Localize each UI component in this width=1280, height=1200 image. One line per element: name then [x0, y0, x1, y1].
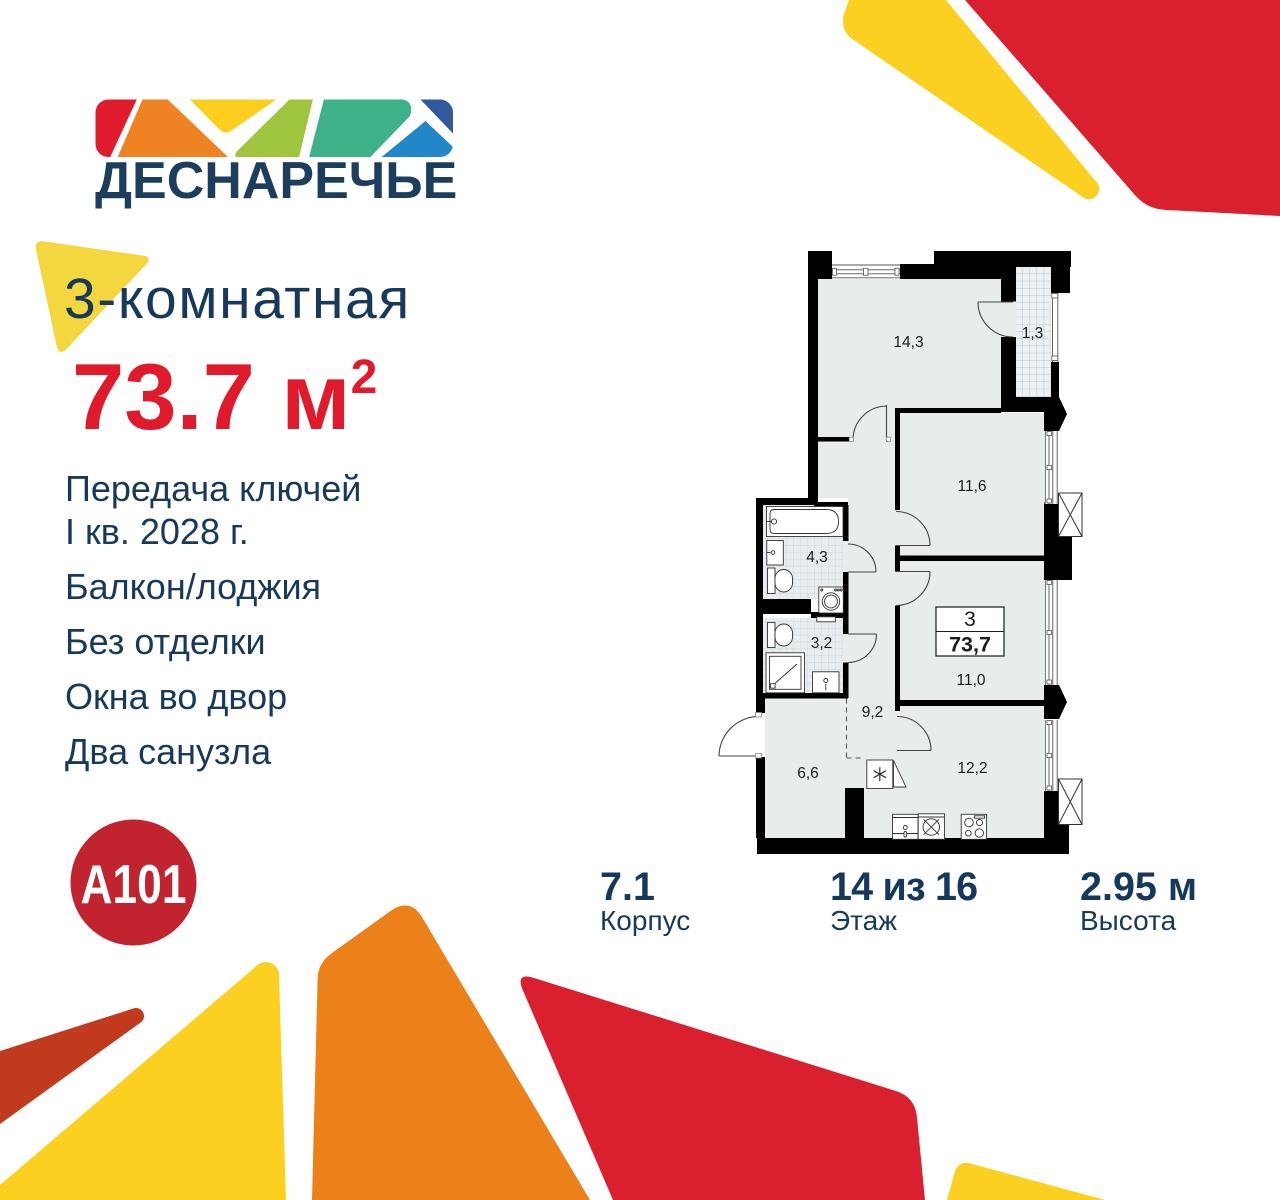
svg-text:6,6: 6,6 — [797, 765, 819, 782]
svg-text:1,3: 1,3 — [1022, 325, 1044, 342]
svg-text:A101: A101 — [81, 853, 187, 915]
svg-text:11,0: 11,0 — [956, 672, 985, 689]
svg-text:12,2: 12,2 — [957, 760, 987, 777]
svg-text:14,3: 14,3 — [893, 334, 923, 351]
svg-text:11,6: 11,6 — [957, 478, 986, 495]
svg-text:4,3: 4,3 — [806, 549, 828, 566]
svg-text:3: 3 — [964, 608, 976, 631]
svg-text:73,7: 73,7 — [949, 633, 991, 657]
svg-text:9,2: 9,2 — [862, 704, 884, 721]
svg-text:3,2: 3,2 — [811, 635, 833, 652]
